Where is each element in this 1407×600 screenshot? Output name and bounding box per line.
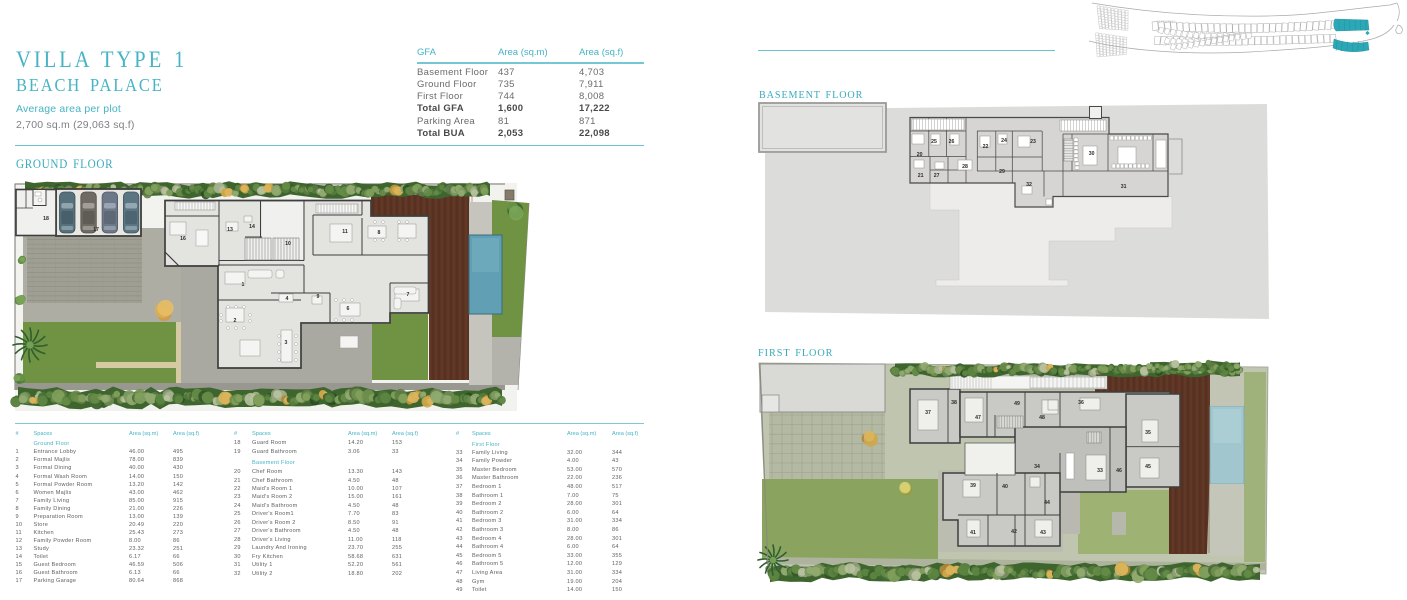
svg-text:20: 20 [917,152,923,158]
svg-text:36: 36 [1078,400,1084,406]
svg-text:35: 35 [1145,430,1151,436]
svg-text:8: 8 [378,230,381,236]
svg-text:44: 44 [1044,500,1050,506]
svg-text:4: 4 [286,296,289,302]
svg-text:7: 7 [407,292,410,298]
svg-text:16: 16 [180,236,186,242]
svg-text:27: 27 [934,173,940,179]
svg-text:34: 34 [1034,464,1040,470]
svg-text:28: 28 [962,164,968,170]
svg-text:33: 33 [1097,468,1103,474]
svg-text:3: 3 [285,340,288,346]
svg-text:17: 17 [93,227,99,233]
svg-text:10: 10 [285,241,291,247]
svg-text:48: 48 [1039,415,1045,421]
svg-text:43: 43 [1040,530,1046,536]
svg-text:14: 14 [249,224,255,230]
svg-text:2: 2 [234,318,237,324]
svg-text:37: 37 [925,410,931,416]
svg-text:13: 13 [227,227,233,233]
svg-text:38: 38 [951,400,957,406]
svg-text:9: 9 [317,294,320,300]
svg-text:11: 11 [342,229,348,235]
svg-text:45: 45 [1145,464,1151,470]
svg-text:49: 49 [1014,401,1020,407]
svg-text:6: 6 [347,306,350,312]
svg-text:46: 46 [1116,468,1122,474]
svg-text:41: 41 [970,530,976,536]
svg-text:18: 18 [43,216,49,222]
svg-text:29: 29 [999,169,1005,175]
svg-text:24: 24 [1001,138,1007,144]
svg-text:23: 23 [1030,139,1036,145]
svg-text:39: 39 [970,483,976,489]
svg-text:40: 40 [1002,484,1008,490]
svg-text:30: 30 [1089,151,1095,157]
svg-text:22: 22 [983,144,989,150]
svg-text:32: 32 [1026,182,1032,188]
svg-text:31: 31 [1121,184,1127,190]
svg-text:1: 1 [242,282,245,288]
svg-text:42: 42 [1011,529,1017,535]
svg-text:26: 26 [949,139,955,145]
svg-text:47: 47 [975,415,981,421]
svg-text:21: 21 [918,173,924,179]
svg-text:25: 25 [931,139,937,145]
